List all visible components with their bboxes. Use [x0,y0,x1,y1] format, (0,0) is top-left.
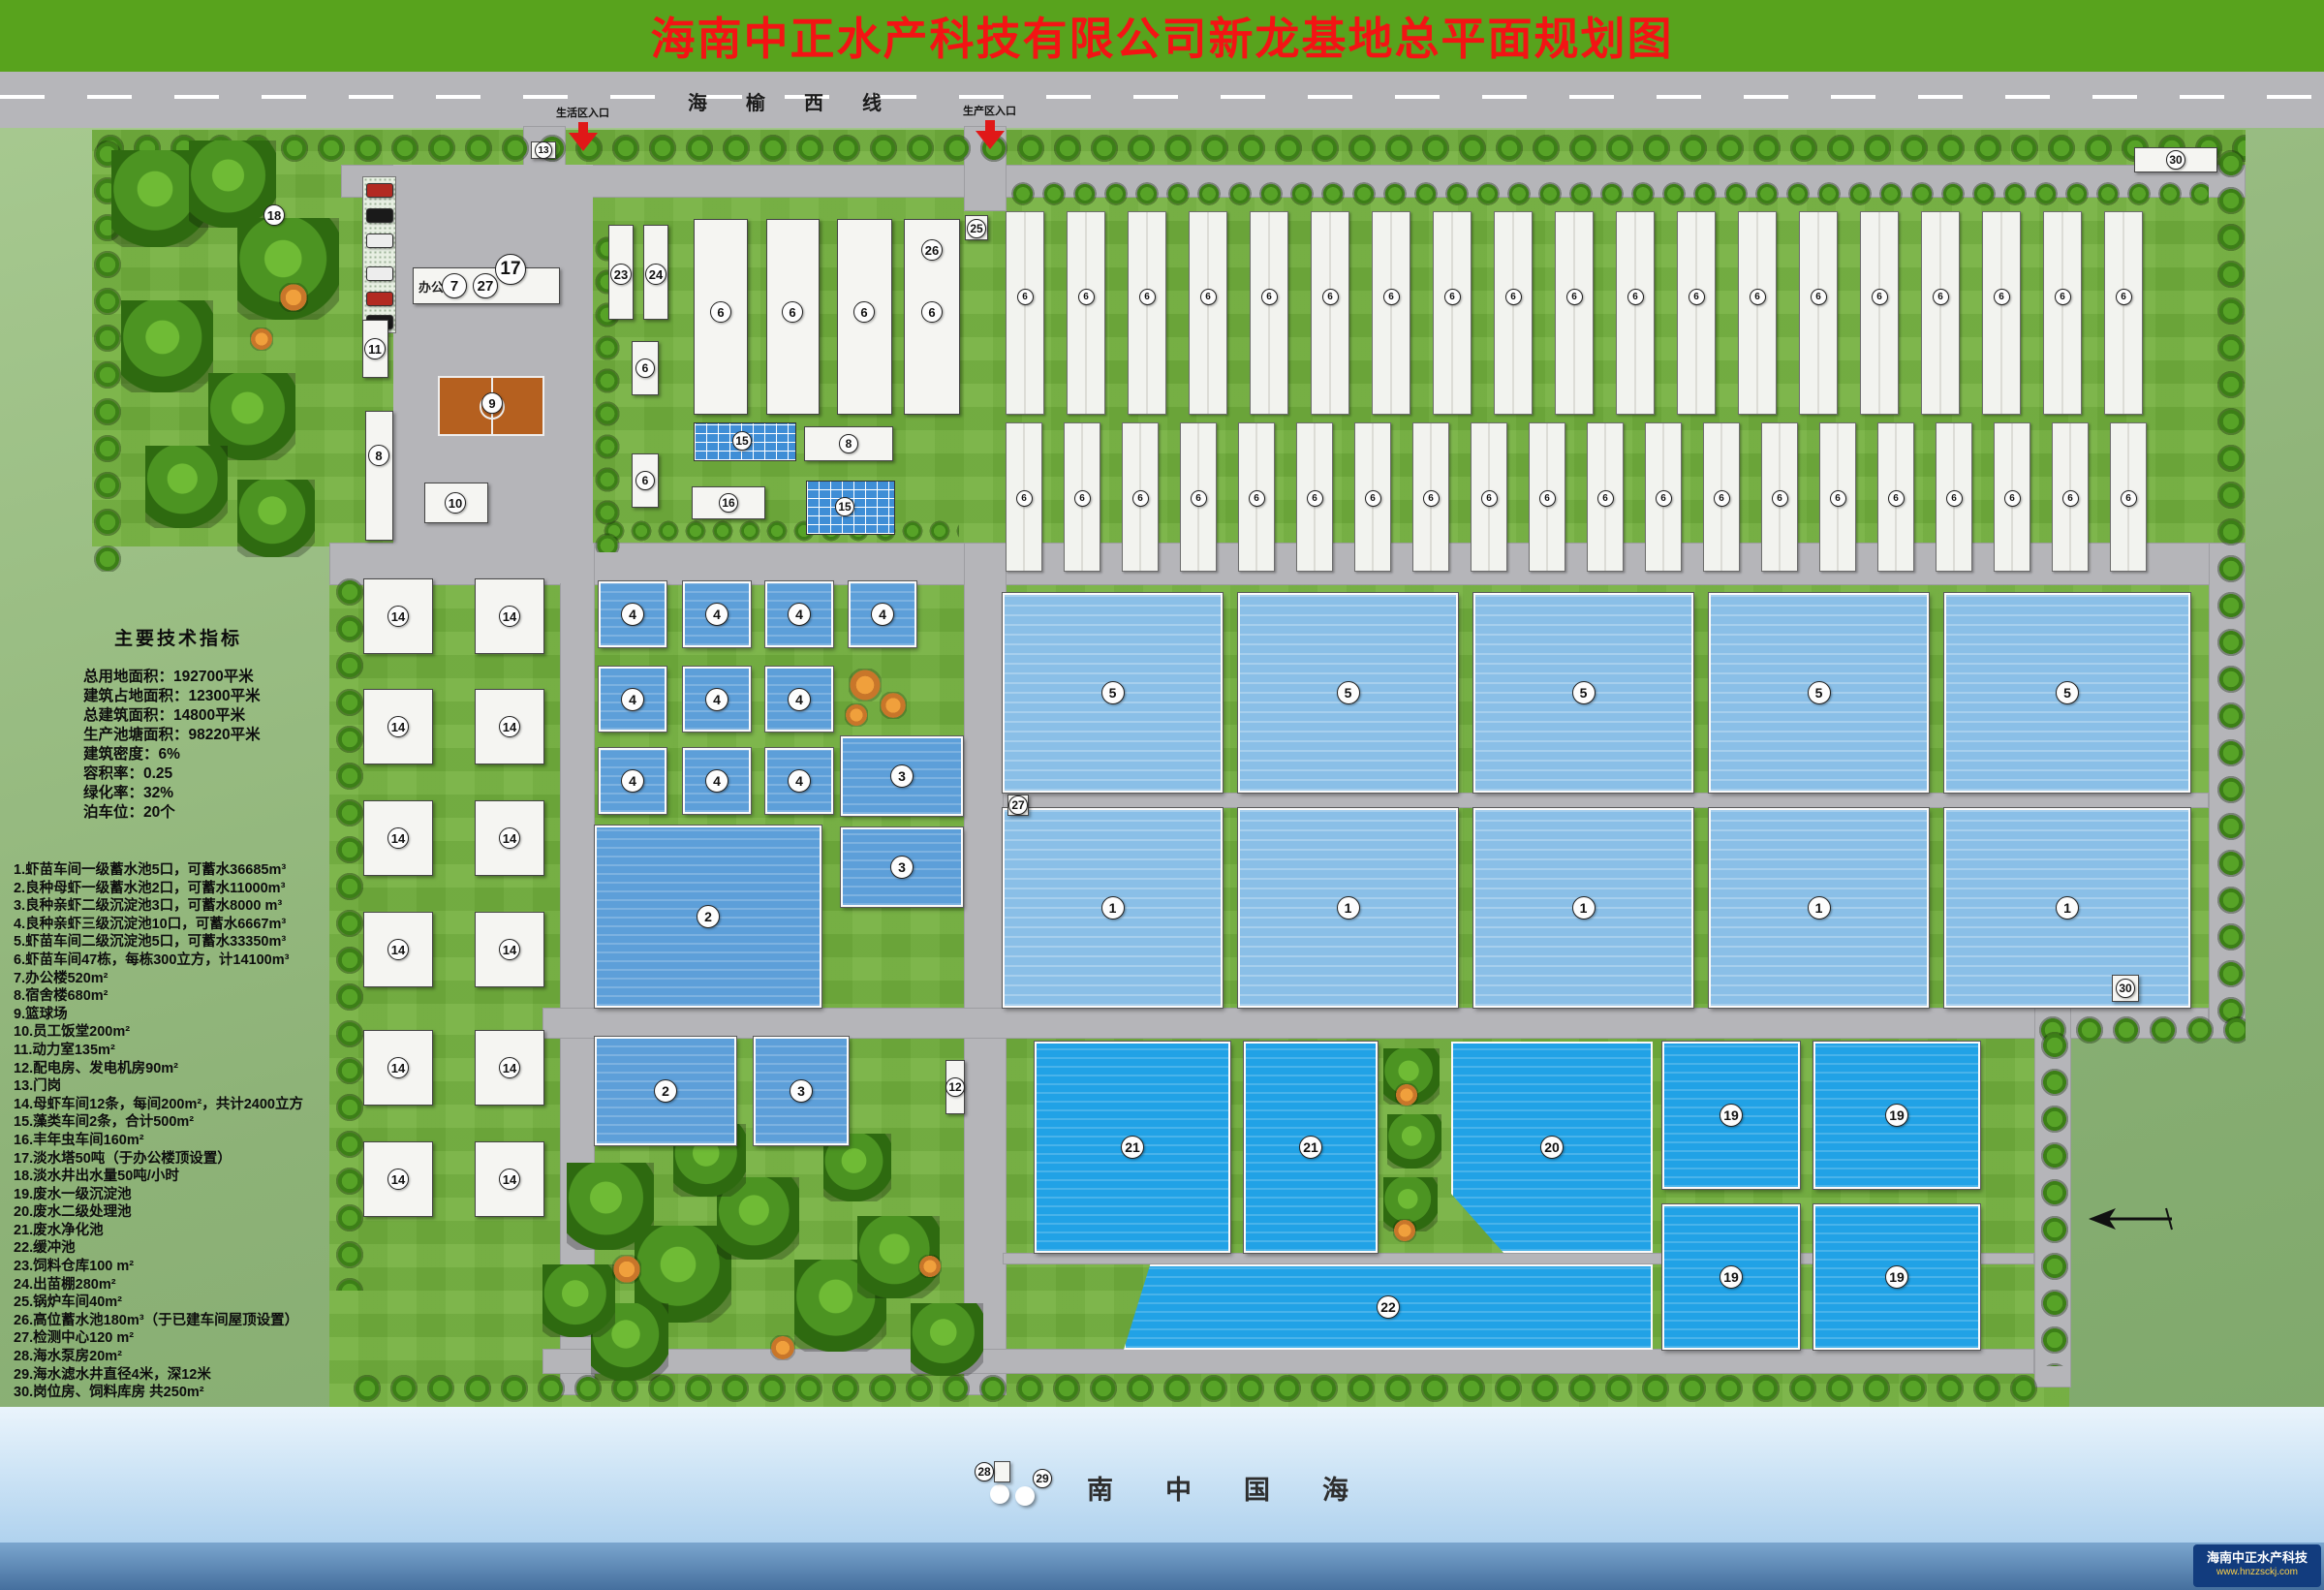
marker-4: 4 [788,603,811,626]
entrance-production: 生产区入口 [963,103,1016,149]
entrance-label: 生产区入口 [963,103,1016,118]
marker-7: 7 [442,273,467,298]
marker-4: 4 [705,769,728,793]
legend-indicator: 建筑密度：6% [83,745,362,764]
marker-15: 15 [835,497,854,516]
workshop-strip [1494,211,1533,415]
marker-3: 3 [790,1079,813,1103]
marker-6: 6 [1750,289,1766,305]
legend-indicator: 绿化率：32% [83,784,362,803]
legend-item: 11.动力室135m² [14,1042,362,1060]
watermark: 海南中正水产科技 www.hnzzsckj.com [2193,1544,2321,1587]
legend-item: 12.配电房、发电机房90m² [14,1060,362,1078]
marker-8: 8 [368,445,389,466]
marker-6: 6 [2004,490,2021,507]
marker-6: 6 [1139,289,1156,305]
marker-27: 27 [473,273,498,298]
legend-item: 10.员工饭堂200m² [14,1023,362,1042]
legend-item: 22.缓冲池 [14,1239,362,1258]
marker-6: 6 [1830,490,1846,507]
site-plan: 办公楼 南中国海 主要技术指标 总用地面积：192700平米建筑占地面积：123… [0,0,2324,1590]
marker-6: 6 [1016,490,1033,507]
marker-19: 19 [1885,1265,1908,1289]
watermark-site-name: 海南中正水产科技 [2193,1549,2321,1566]
marker-6: 6 [635,471,655,490]
workshop-strip [1921,211,1960,415]
workshop-strip [1616,211,1655,415]
workshop-strip [1555,211,1594,415]
marker-15: 15 [732,431,752,451]
marker-4: 4 [621,688,644,711]
legend-item: 30.岗位房、饲料库房 共250m² [14,1384,362,1402]
marker-13: 13 [535,141,552,159]
marker-9: 9 [481,392,503,414]
workshop-strip [1006,211,1044,415]
marker-16: 16 [719,493,738,513]
legend-item: 28.海水泵房20m² [14,1348,362,1366]
marker-30: 30 [2166,150,2185,170]
marker-4: 4 [871,603,894,626]
legend-item: 24.出苗棚280m² [14,1276,362,1294]
marker-6: 6 [1994,289,2010,305]
marker-21: 21 [1299,1136,1322,1159]
legend-item: 2.良种母虾一级蓄水池2口，可蓄水11000m³ [14,880,362,898]
legend-item: 3.良种亲虾二级沉淀池3口，可蓄水8000 m³ [14,897,362,916]
legend-item: 16.丰年虫车间160m² [14,1132,362,1150]
marker-6: 6 [1539,490,1556,507]
marker-29: 29 [1033,1469,1052,1488]
legend-indicator: 容积率：0.25 [83,764,362,784]
compass-north-arrow [2083,1197,2180,1241]
marker-4: 4 [705,688,728,711]
building [994,1461,1010,1482]
entrance-arrow-icon [963,120,1016,149]
legend-indicators: 总用地面积：192700平米建筑占地面积：12300平米总建筑面积：14800平… [14,668,362,823]
marker-6: 6 [1656,490,1672,507]
workshop-strip [1433,211,1472,415]
legend-indicator: 总用地面积：192700平米 [83,668,362,687]
marker-24: 24 [645,264,666,285]
legend-indicator: 建筑占地面积：12300平米 [83,687,362,706]
legend-item: 7.办公楼520m² [14,970,362,988]
marker-6: 6 [1322,289,1339,305]
marker-6: 6 [1627,289,1644,305]
marker-6: 6 [1566,289,1583,305]
marker-17: 17 [495,254,526,285]
entrance-life: 生活区入口 [556,105,609,151]
marker-1: 1 [1101,896,1125,920]
legend-item: 25.锅炉车间40m² [14,1294,362,1312]
marker-3: 3 [890,856,914,879]
legend-item: 1.虾苗车间一级蓄水池5口，可蓄水36685m³ [14,861,362,880]
marker-6: 6 [2121,490,2137,507]
plan-title: 海南中正水产科技有限公司新龙基地总平面规划图 [651,4,1674,68]
marker-6: 6 [1888,490,1905,507]
marker-6: 6 [1307,490,1323,507]
legend-item: 23.饲料仓库100 m² [14,1258,362,1276]
legend-item: 13.门岗 [14,1077,362,1096]
marker-14: 14 [387,827,409,849]
marker-1: 1 [1808,896,1831,920]
marker-14: 14 [499,716,520,737]
marker-14: 14 [499,1169,520,1190]
marker-14: 14 [499,1057,520,1078]
marker-28: 28 [975,1462,994,1481]
legend-item: 9.篮球场 [14,1006,362,1024]
marker-6: 6 [1811,289,1827,305]
marker-6: 6 [1383,289,1400,305]
legend-item: 8.宿舍楼680m² [14,987,362,1006]
marker-6: 6 [1872,289,1888,305]
marker-6: 6 [1200,289,1217,305]
marker-23: 23 [610,264,632,285]
marker-19: 19 [1720,1104,1743,1127]
marker-6: 6 [1132,490,1149,507]
marker-6: 6 [1714,490,1730,507]
marker-6: 6 [635,359,655,378]
marker-14: 14 [387,1169,409,1190]
marker-6: 6 [1689,289,1705,305]
marker-27: 27 [1008,795,1028,815]
workshop-strip [1677,211,1716,415]
entrance-arrow-icon [556,122,609,151]
marker-6: 6 [1423,490,1440,507]
marker-4: 4 [788,688,811,711]
building [365,411,393,541]
marker-14: 14 [499,606,520,627]
marker-6: 6 [2062,490,2079,507]
marker-2: 2 [697,905,720,928]
marker-6: 6 [853,301,875,323]
marker-6: 6 [1074,490,1091,507]
marker-20: 20 [1540,1136,1564,1159]
legend-items: 1.虾苗车间一级蓄水池5口，可蓄水36685m³2.良种母虾一级蓄水池2口，可蓄… [14,861,362,1402]
marker-12: 12 [945,1077,965,1097]
legend-item: 14.母虾车间12条，每间200m²，共计2400立方 [14,1096,362,1114]
marker-5: 5 [1101,681,1125,704]
title-bar: 海南中正水产科技有限公司新龙基地总平面规划图 [0,0,2324,72]
marker-3: 3 [890,764,914,788]
workshop-strip [1067,211,1105,415]
marker-6: 6 [710,301,731,323]
marker-6: 6 [1365,490,1381,507]
workshop-strip [1372,211,1410,415]
workshop-strip [1738,211,1777,415]
marker-6: 6 [1597,490,1614,507]
legend-item: 6.虾苗车间47栋，每栋300立方，计14100m³ [14,951,362,970]
marker-14: 14 [499,827,520,849]
marker-14: 14 [387,716,409,737]
marker-4: 4 [788,769,811,793]
marker-8: 8 [839,434,858,453]
marker-6: 6 [1444,289,1461,305]
entrance-label: 生活区入口 [556,105,609,120]
marker-6: 6 [1261,289,1278,305]
marker-6: 6 [1772,490,1788,507]
legend-item: 15.藻类车间2条，合计500m² [14,1113,362,1132]
marker-6: 6 [2116,289,2132,305]
legend-item: 4.良种亲虾三级沉淀池10口，可蓄水6667m³ [14,916,362,934]
marker-6: 6 [1078,289,1095,305]
workshop-strip [2043,211,2082,415]
legend-item: 18.淡水井出水量50吨/小时 [14,1168,362,1186]
marker-30: 30 [2116,979,2135,998]
marker-19: 19 [1720,1265,1743,1289]
marker-6: 6 [1946,490,1963,507]
workshop-strip [1311,211,1349,415]
marker-5: 5 [1808,681,1831,704]
marker-22: 22 [1377,1295,1400,1319]
marker-10: 10 [445,492,466,514]
legend-item: 21.废水净化池 [14,1222,362,1240]
marker-6: 6 [921,301,943,323]
legend-item: 29.海水滤水井直径4米，深12米 [14,1366,362,1385]
marker-6: 6 [1191,490,1207,507]
legend-item: 26.高位蓄水池180m³（于已建车间屋顶设置） [14,1312,362,1330]
legend-indicator: 总建筑面积：14800平米 [83,706,362,726]
marker-4: 4 [621,769,644,793]
marker-21: 21 [1121,1136,1144,1159]
marker-6: 6 [1249,490,1265,507]
marker-4: 4 [705,603,728,626]
legend-indicator: 生产池塘面积：98220平米 [83,726,362,745]
marker-14: 14 [499,939,520,960]
marker-6: 6 [1017,289,1034,305]
marker-25: 25 [967,219,986,238]
legend-indicator: 泊车位：20个 [83,803,362,823]
marker-1: 1 [1572,896,1596,920]
marker-5: 5 [1572,681,1596,704]
legend-item: 19.废水一级沉淀池 [14,1186,362,1204]
marker-6: 6 [1481,490,1498,507]
marker-1: 1 [2056,896,2079,920]
workshop-strip [1799,211,1838,415]
marker-14: 14 [387,939,409,960]
marker-26: 26 [921,239,943,261]
marker-14: 14 [387,606,409,627]
marker-2: 2 [654,1079,677,1103]
workshop-strip [1189,211,1227,415]
workshop-strip [1860,211,1899,415]
marker-6: 6 [1933,289,1949,305]
marker-11: 11 [364,338,386,359]
marker-18: 18 [263,204,285,226]
marker-19: 19 [1885,1104,1908,1127]
legend-item: 27.检测中心120 m² [14,1329,362,1348]
marker-6: 6 [1505,289,1522,305]
sea-label: 南中国海 [1087,1469,1401,1507]
legend-item: 17.淡水塔50吨（于办公楼顶设置） [14,1150,362,1169]
marker-4: 4 [621,603,644,626]
marker-1: 1 [1337,896,1360,920]
watermark-url: www.hnzzsckj.com [2193,1566,2321,1579]
marker-5: 5 [1337,681,1360,704]
workshop-strip [2104,211,2143,415]
legend-item: 20.废水二级处理池 [14,1203,362,1222]
legend-title: 主要技术指标 [14,624,362,650]
workshop-strip [1250,211,1288,415]
workshop-strip [1128,211,1166,415]
workshop-strip [1982,211,2021,415]
marker-5: 5 [2056,681,2079,704]
marker-6: 6 [782,301,803,323]
marker-6: 6 [2055,289,2071,305]
legend-item: 5.虾苗车间二级沉淀池5口，可蓄水33350m³ [14,933,362,951]
legend-panel: 主要技术指标 总用地面积：192700平米建筑占地面积：12300平米总建筑面积… [14,624,362,1402]
marker-14: 14 [387,1057,409,1078]
